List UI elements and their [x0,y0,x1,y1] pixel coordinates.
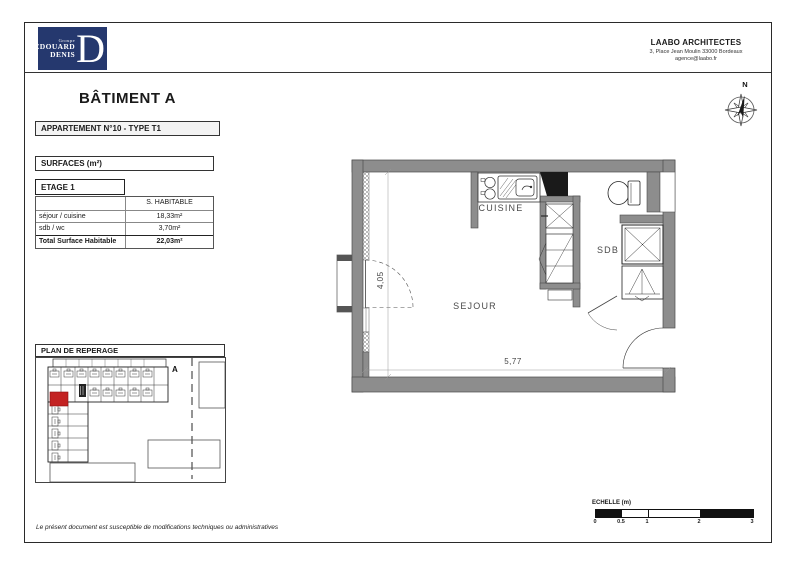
total-value: 22,03m² [126,236,213,248]
adjacent-structure [148,440,220,468]
surfaces-title: SURFACES (m²) [41,159,102,168]
architect-email: agence@laabo.fr [630,56,762,62]
apartment-title-box: APPARTEMENT N°10 - TYPE T1 [35,121,220,136]
adjacent-structure [50,463,135,482]
surfaces-title-box: SURFACES (m²) [35,156,214,171]
scale-segments [595,509,754,518]
balcony [337,255,352,312]
floor-label-box: ETAGE 1 [35,179,125,195]
table-total-row: Total Surface Habitable 22,03m² [36,235,213,248]
scale-tick: 2 [697,519,700,525]
bathroom-door [588,296,617,330]
adjacent-structure [199,362,225,408]
shower [622,225,663,264]
apartment-title: APPARTEMENT N°10 - TYPE T1 [41,124,161,133]
table-row: séjour / cuisine 18,33m² [36,210,213,223]
floor-label: ETAGE 1 [41,183,75,192]
logo-line2: DENIS [34,51,75,59]
row-value: 3,70m² [126,223,213,235]
architect-address: 3, Place Jean Moulin 33000 Bordeaux [630,49,762,55]
highlighted-apartment [50,392,68,406]
left-wall-openings [363,172,369,377]
washer-area [541,204,573,228]
architectural-plan-page: Groupe EDOUARD DENIS D LAABO ARCHITECTES… [0,0,799,565]
building-left-wing [48,402,88,462]
surfaces-table: S. HABITABLE séjour / cuisine 18,33m² sd… [35,196,214,249]
building-label: A [172,365,178,374]
row-value: 18,33m² [126,211,213,223]
row-label: séjour / cuisine [36,211,126,223]
scale-tick: 0 [593,519,596,525]
table-header-empty-cell [36,197,126,210]
site-plan-map: A [35,357,226,483]
room-label-bathroom: SDB [597,245,619,255]
header-divider [24,72,771,73]
logo-monogram: D [76,29,105,69]
total-label: Total Surface Habitable [36,236,126,248]
scale-bar: ECHELLE (m) 0 0.5 1 2 3 [592,500,764,530]
room-label-kitchen: CUISINE [479,203,524,213]
table-header-cell: S. HABITABLE [126,197,213,210]
scale-title: ECHELLE (m) [592,500,764,506]
room-label-living: SEJOUR [453,301,497,311]
french-door [366,260,414,308]
site-plan-title: PLAN DE REPERAGE [41,346,118,355]
dimension-width: 5,77 [504,357,522,366]
scale-tick: 3 [750,519,753,525]
logo-text: Groupe EDOUARD DENIS [34,39,75,59]
scale-tick: 1 [645,519,648,525]
compass-rose: N [716,76,766,136]
row-label: sdb / wc [36,223,126,235]
edouard-denis-logo: Groupe EDOUARD DENIS D [38,27,107,70]
floor-plan-drawing: 4,05 5,77 CUISINE SDB SEJOUR [335,148,690,398]
site-plan-title-box: PLAN DE REPERAGE [35,344,225,357]
duct-shaft [540,172,568,196]
architect-name: LAABO ARCHITECTES [630,38,762,47]
stair-core [79,384,86,397]
entrance-door [623,328,663,368]
table-header-row: S. HABITABLE [36,197,213,210]
site-plan-drawing: A [36,358,225,482]
building-title: BÂTIMENT A [79,90,176,107]
dimension-height: 4,05 [376,271,385,289]
compass-icon [725,94,757,126]
sdb-niche [660,172,675,212]
cooktop-burner [485,177,495,187]
table-row: sdb / wc 3,70m² [36,222,213,235]
bathroom-sink [622,266,663,301]
architect-block: LAABO ARCHITECTES 3, Place Jean Moulin 3… [630,38,762,62]
toilet [608,181,640,205]
compass-north-label: N [742,80,747,89]
scale-tick: 0.5 [617,519,625,525]
footer-disclaimer: Le présent document est susceptible de m… [36,524,278,531]
cooktop-burner [485,189,495,199]
kitchen-counter [478,173,540,202]
